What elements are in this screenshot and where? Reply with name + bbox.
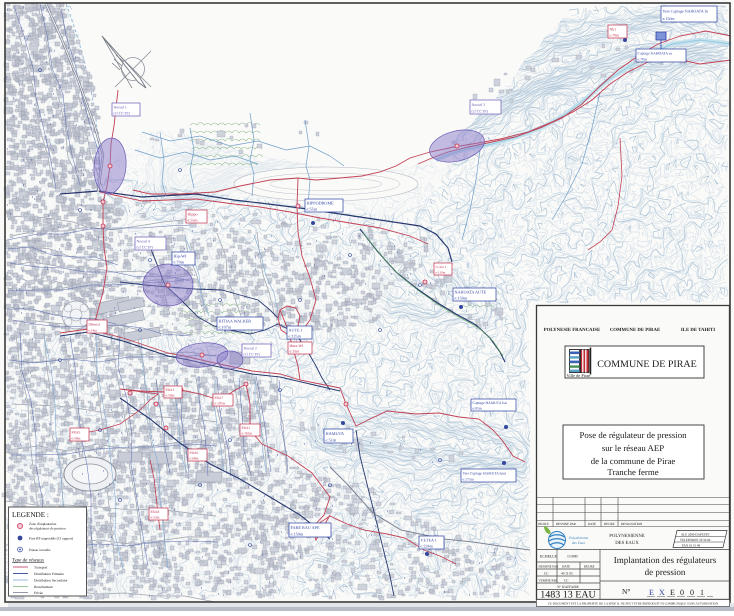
svg-text:(cf CCTP): (cf CCTP)	[137, 245, 154, 249]
svg-text:Branchement: Branchement	[34, 585, 53, 589]
svg-text:Distribution Primaire: Distribution Primaire	[34, 572, 64, 576]
svg-text:N-Aut 1: N-Aut 1	[436, 265, 447, 269]
svg-text:e:150m: e:150m	[291, 531, 304, 536]
svg-text:NAHOATA AUTE: NAHOATA AUTE	[455, 289, 487, 294]
svg-text:FRA8: FRA8	[151, 510, 160, 514]
svg-text:0: 0	[680, 588, 684, 597]
svg-text:Hip-WI: Hip-WI	[174, 253, 188, 258]
svg-text:0: 0	[690, 588, 694, 597]
svg-text:(cf CCTP): (cf CCTP)	[472, 109, 489, 113]
svg-text:Hma-WI: Hma-WI	[290, 344, 305, 348]
svg-text:Distribution Secondaire: Distribution Secondaire	[34, 578, 68, 582]
svg-text:e:125m: e:125m	[289, 333, 302, 338]
svg-text:e:58m: e:58m	[72, 436, 81, 440]
svg-text:sur le réseau AEP: sur le réseau AEP	[602, 443, 664, 453]
svg-text:e:85m: e:85m	[473, 407, 482, 411]
svg-text:Transport: Transport	[34, 565, 48, 569]
svg-text:HITIAA WALKER: HITIAA WALKER	[219, 318, 252, 323]
svg-text:1483 13 EAU: 1483 13 EAU	[540, 590, 596, 601]
svg-text:DATE: DATE	[588, 522, 596, 526]
svg-text:CC: CC	[564, 578, 569, 582]
svg-text:40 11 05: 40 11 05	[561, 571, 573, 575]
svg-text:Poteau incendie: Poteau incendie	[29, 548, 51, 552]
svg-text:e:59m: e:59m	[166, 394, 175, 398]
svg-text:FAX 42 15 48: FAX 42 15 48	[682, 544, 700, 548]
svg-text:e:107m: e:107m	[219, 324, 232, 329]
svg-text:Privée: Privée	[34, 591, 43, 595]
svg-text:e:175m: e:175m	[463, 477, 474, 481]
svg-text:e:110m: e:110m	[242, 432, 253, 436]
svg-text:Polynésienne: Polynésienne	[568, 536, 589, 540]
svg-text:(cf CCTP): (cf CCTP)	[244, 352, 261, 356]
svg-text:e:53m: e:53m	[151, 516, 160, 520]
svg-text:e:107m: e:107m	[215, 402, 226, 406]
svg-text:TELEPHONE 50 50 06: TELEPHONE 50 50 06	[680, 538, 711, 542]
svg-text:e:150m: e:150m	[663, 16, 676, 21]
svg-text:Vers Captage HAMUTA haut: Vers Captage HAMUTA haut	[463, 471, 506, 475]
svg-text:1/1000: 1/1000	[567, 555, 578, 559]
svg-text:e:224m: e:224m	[421, 543, 434, 548]
svg-text:Noeud 2: Noeud 2	[244, 346, 257, 350]
svg-text:FRA6: FRA6	[190, 451, 199, 455]
svg-text:e:70m: e:70m	[174, 259, 185, 264]
svg-text:Tranche ferme: Tranche ferme	[607, 467, 658, 477]
svg-text:E: E	[670, 588, 675, 597]
svg-text:Zone d'implantation: Zone d'implantation	[29, 522, 57, 526]
svg-text:POLYNESIE FRANCAISE: POLYNESIE FRANCAISE	[544, 327, 600, 333]
svg-text:N° D'AFFAIRE: N° D'AFFAIRE	[557, 585, 579, 589]
svg-text:FARE RAU APE: FARE RAU APE	[291, 525, 320, 530]
svg-text:BRema1: BRema1	[89, 322, 101, 326]
svg-text:e:110m: e:110m	[436, 271, 446, 275]
svg-text:de pression: de pression	[645, 567, 686, 577]
svg-text:de la commune de Pirae: de la commune de Pirae	[591, 456, 676, 466]
svg-text:Hippo: Hippo	[188, 211, 198, 216]
svg-text:Ville de Pirae: Ville de Pirae	[567, 373, 591, 378]
svg-text:CC: CC	[544, 571, 549, 575]
svg-text:Captage NAHOATA ea: Captage NAHOATA ea	[638, 51, 673, 55]
svg-text:E: E	[649, 588, 654, 597]
svg-text:COMMUNE DE PIRAE: COMMUNE DE PIRAE	[597, 359, 696, 370]
svg-text:N°: N°	[622, 587, 630, 596]
svg-text:e:55m: e:55m	[307, 206, 318, 211]
svg-text:CE DOCUMENT EST LA PROPRIETE D: CE DOCUMENT EST LA PROPRIETE DE LA SPDE …	[548, 602, 719, 606]
svg-text:e:70m: e:70m	[638, 57, 647, 61]
svg-text:(cf CCTP): (cf CCTP)	[114, 111, 131, 115]
svg-text:HAMUTA: HAMUTA	[326, 431, 345, 436]
svg-text:Type de réseaux: Type de réseaux	[12, 558, 45, 564]
svg-text:Pose de régulateur de pression: Pose de régulateur de pression	[580, 430, 688, 440]
svg-text:HEURE: HEURE	[584, 564, 595, 568]
svg-text:POLYNESIENNE: POLYNESIENNE	[609, 533, 645, 539]
svg-text:DESSINE PAR: DESSINE PAR	[539, 564, 560, 568]
svg-text:DES EAUX: DES EAUX	[615, 540, 639, 546]
svg-text:AUTE 1: AUTE 1	[289, 327, 303, 332]
svg-text:Noeud 4: Noeud 4	[137, 239, 150, 243]
svg-text:FRA1: FRA1	[166, 388, 175, 392]
svg-text:DESIGNATION: DESIGNATION	[621, 522, 643, 526]
svg-text:e:35m: e:35m	[290, 350, 300, 354]
svg-text:FRA5: FRA5	[72, 430, 81, 434]
svg-text:Pose RP impossible (Cf rapport: Pose RP impossible (Cf rapport)	[29, 537, 73, 541]
svg-text:DESSINE PAR: DESSINE PAR	[556, 522, 577, 526]
svg-text:VETEA 1: VETEA 1	[421, 537, 437, 542]
svg-text:ILE DE TAHITI: ILE DE TAHITI	[681, 327, 715, 333]
svg-text:e:150m: e:150m	[455, 295, 468, 300]
svg-text:des régulateurs de pression: des régulateurs de pression	[29, 526, 66, 530]
svg-text:VERIFIE PAR: VERIFIE PAR	[539, 578, 559, 582]
svg-text:FRA7: FRA7	[215, 396, 224, 400]
svg-text:e:14m: e:14m	[89, 328, 98, 332]
svg-text:FRAI: FRAI	[242, 426, 251, 430]
svg-text:e:51m: e:51m	[326, 437, 337, 442]
svg-text:Vers Captage NAHOATA In: Vers Captage NAHOATA In	[663, 9, 708, 14]
svg-text:e:70m: e:70m	[610, 33, 620, 37]
svg-text:Nh1: Nh1	[610, 27, 617, 31]
svg-text:e:68m: e:68m	[190, 457, 199, 461]
svg-text:e:55m: e:55m	[188, 217, 199, 222]
svg-text:des Eaux: des Eaux	[572, 541, 585, 545]
svg-text:Implantation des régulateurs: Implantation des régulateurs	[614, 555, 717, 565]
svg-text:Captage HAMUTA bas: Captage HAMUTA bas	[473, 401, 508, 405]
svg-text:X: X	[659, 588, 665, 597]
svg-text:Noeud 1: Noeud 1	[114, 105, 127, 109]
svg-text:HEURE: HEURE	[604, 522, 615, 526]
svg-text:INDICE: INDICE	[538, 522, 549, 526]
svg-text:HIPPODROME: HIPPODROME	[307, 200, 335, 205]
svg-text:COMMUNE DE PIRAE: COMMUNE DE PIRAE	[610, 327, 660, 333]
svg-text:DATE: DATE	[562, 564, 570, 568]
svg-text:ALE 2000-DAPESTE: ALE 2000-DAPESTE	[681, 533, 709, 537]
svg-text:1: 1	[700, 588, 704, 597]
svg-text:ECHELLE: ECHELLE	[540, 555, 558, 559]
svg-text:LEGENDE :: LEGENDE :	[12, 511, 49, 519]
svg-text:Noeud 3: Noeud 3	[472, 103, 485, 107]
